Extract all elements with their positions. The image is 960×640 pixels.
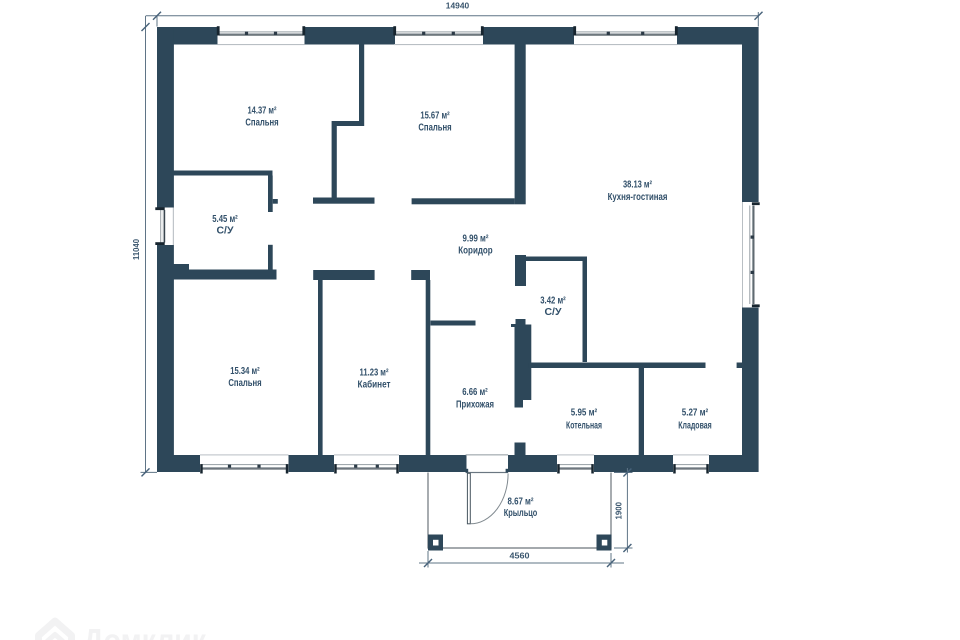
svg-text:11.23 м²: 11.23 м² [360,368,390,379]
svg-text:Домклик: Домклик [83,623,207,640]
svg-text:6.66 м²: 6.66 м² [462,387,488,398]
svg-text:5.45 м²: 5.45 м² [212,214,238,225]
svg-text:15.34 м²: 15.34 м² [230,366,260,377]
svg-text:Спальня: Спальня [418,123,451,134]
svg-text:С/У: С/У [217,226,235,237]
svg-text:Кухня-гостиная: Кухня-гостиная [608,192,668,203]
svg-text:Кладовая: Кладовая [678,420,712,431]
svg-text:15.67 м²: 15.67 м² [420,111,450,122]
svg-text:14940: 14940 [446,1,470,10]
svg-text:Кабинет: Кабинет [358,379,391,391]
svg-text:3.42 м²: 3.42 м² [540,295,566,306]
svg-text:Прихожая: Прихожая [456,400,494,411]
svg-text:Коридор: Коридор [458,246,492,257]
svg-text:Крыльцо: Крыльцо [504,508,538,519]
svg-text:С/У: С/У [545,307,563,318]
svg-text:4560: 4560 [510,552,531,561]
svg-text:Котельная: Котельная [566,420,602,431]
svg-text:11040: 11040 [132,238,141,260]
svg-text:5.95 м²: 5.95 м² [571,408,598,419]
svg-text:Спальня: Спальня [245,118,278,129]
svg-text:14.37 м²: 14.37 м² [248,106,278,117]
svg-text:8.67 м²: 8.67 м² [508,497,535,508]
svg-text:38.13 м²: 38.13 м² [623,180,653,191]
svg-text:9.99 м²: 9.99 м² [463,234,490,245]
svg-text:Спальня: Спальня [228,378,261,389]
svg-text:5.27 м²: 5.27 м² [682,408,709,419]
svg-text:1900: 1900 [615,501,624,519]
